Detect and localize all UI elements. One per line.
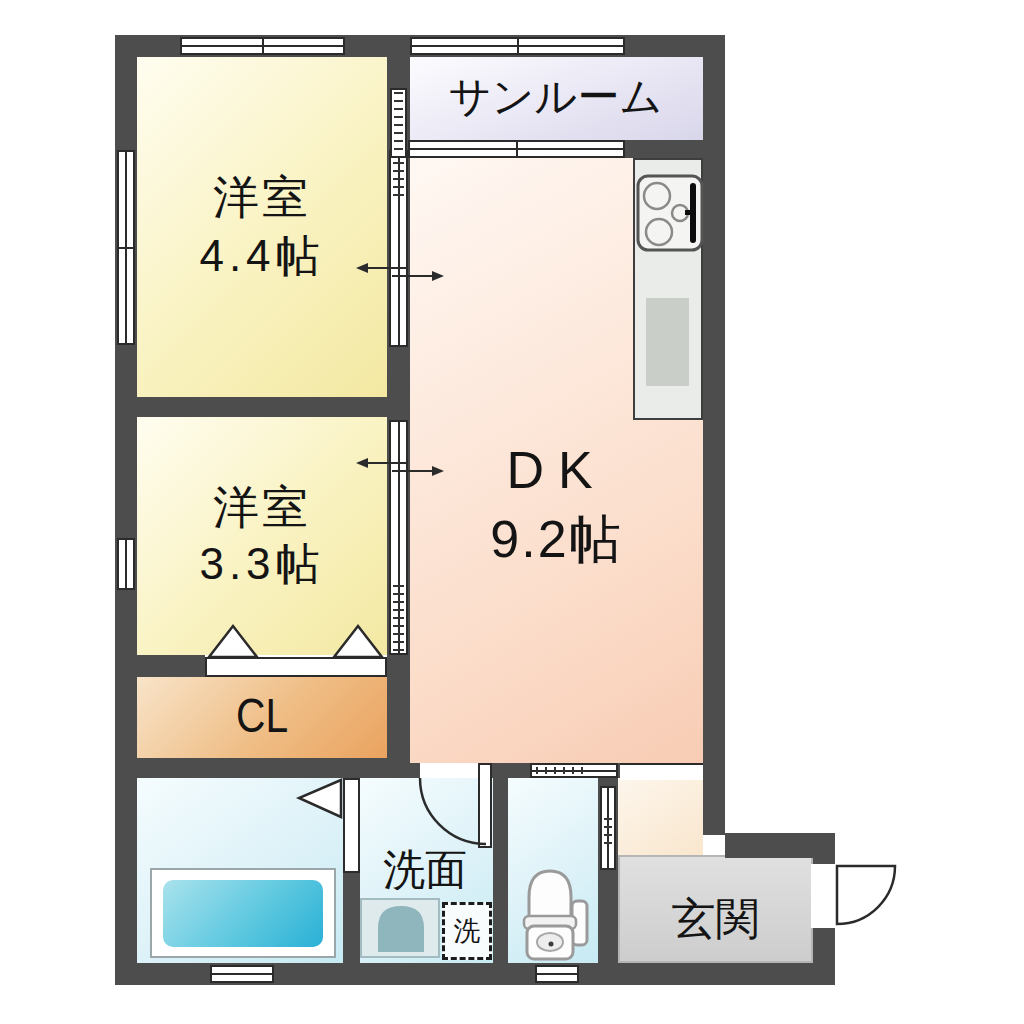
wall-segment [703,35,725,835]
sliding-window-icon [117,150,135,345]
room-label-washroom: 洗面 [350,845,500,895]
sliding-window-icon [180,37,345,55]
sliding-door-icon [530,763,618,778]
folding-door-icon [205,657,387,677]
wall-segment [137,655,205,677]
sliding-door-icon [389,420,408,655]
entrance-door-icon [837,866,895,924]
sliding-window-icon [210,965,274,983]
wall-segment [625,140,703,158]
room-label-sunroom: サンルーム [408,72,703,122]
room-label-dk: DK 9.2帖 [410,440,703,571]
washbasin-unit [360,898,440,958]
room-label-bedroom1: 洋室 4.4帖 [137,170,387,282]
room-label-laundry: 洗 [442,916,492,948]
sliding-window-icon [410,37,625,55]
sliding-window-icon [535,965,579,983]
sliding-window-icon [408,140,625,158]
sliding-door-icon [600,786,616,870]
wall-segment [137,397,387,417]
room-label-bedroom2: 洋室 3.3帖 [137,480,387,590]
room-toilet-floor [508,778,598,963]
room-label-closet: CL [156,688,369,745]
sliding-door-icon [390,88,407,158]
wall-segment [725,833,835,858]
wall-segment [115,758,387,778]
hallway-floor [618,778,703,855]
bathtub-icon [163,880,323,947]
kitchen-sink-icon [646,298,689,386]
wall-opening [620,763,703,780]
sliding-door-icon [389,150,408,347]
sliding-window-icon [117,538,135,590]
wall-opening [811,864,837,928]
floor-plan: サンルーム 洋室 4.4帖 DK 9.2帖 洋室 3.3帖 CL 洗面 洗 玄関 [0,0,1024,1024]
hinged-door-leaf [478,763,492,848]
room-label-entrance: 玄関 [618,893,813,945]
